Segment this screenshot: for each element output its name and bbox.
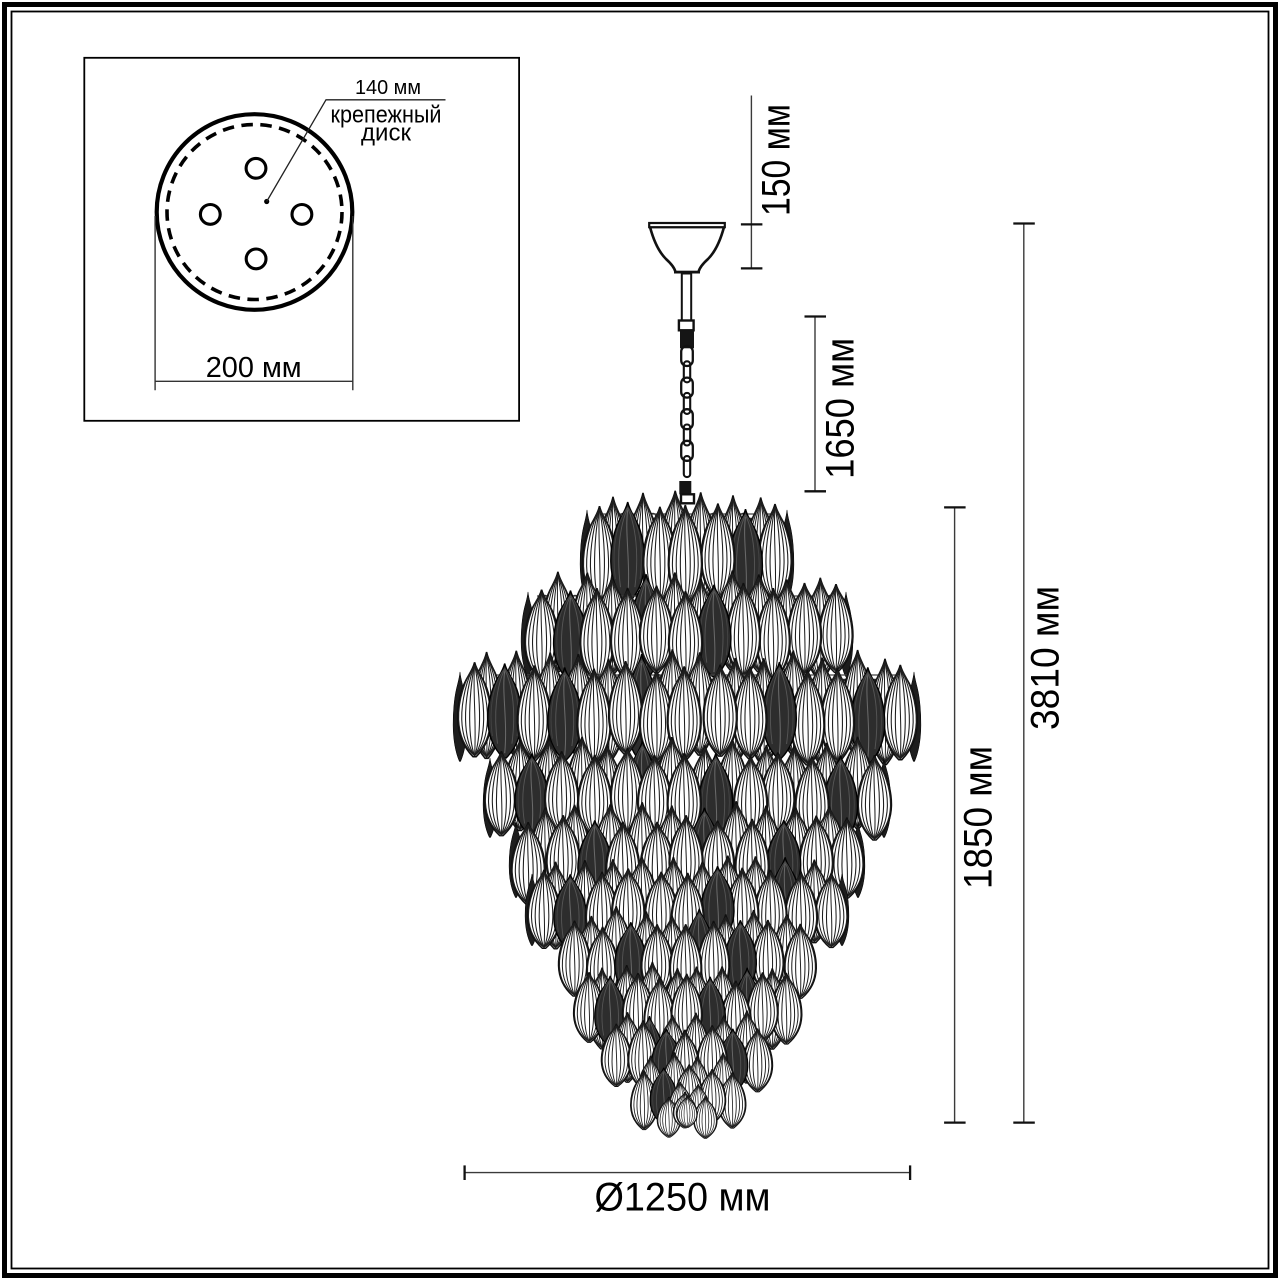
svg-text:диск: диск [361, 120, 411, 147]
svg-text:1850 мм: 1850 мм [957, 746, 1001, 889]
svg-text:Ø1250 мм: Ø1250 мм [595, 1176, 771, 1220]
svg-text:200 мм: 200 мм [206, 352, 302, 384]
svg-text:150 мм: 150 мм [755, 104, 799, 216]
svg-text:1650 мм: 1650 мм [819, 338, 863, 479]
svg-text:3810 мм: 3810 мм [1024, 586, 1068, 730]
svg-text:140 мм: 140 мм [355, 76, 421, 99]
